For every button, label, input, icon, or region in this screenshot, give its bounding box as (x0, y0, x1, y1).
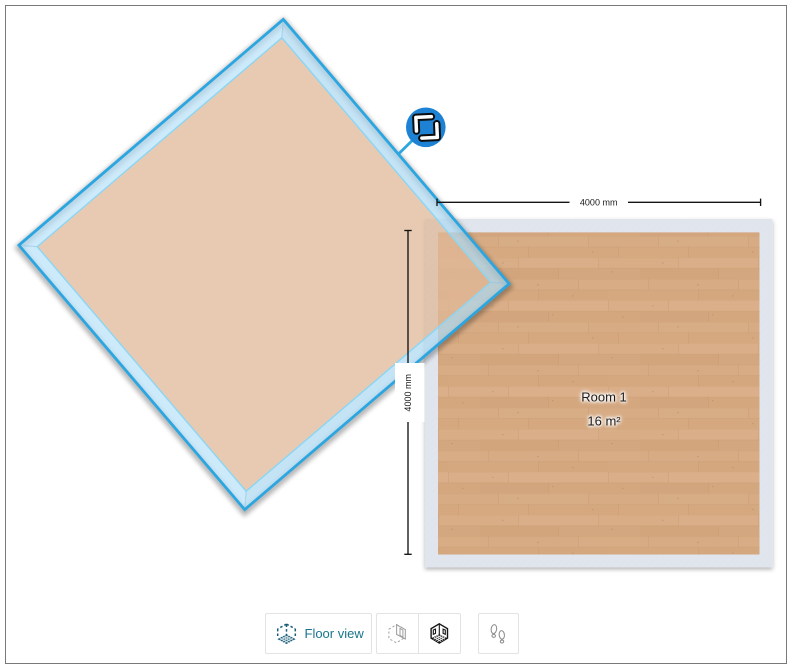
svg-text:4000 mm: 4000 mm (403, 374, 413, 412)
svg-text:Room 1: Room 1 (581, 390, 627, 405)
svg-text:16 m²: 16 m² (587, 414, 621, 429)
svg-text:4000 mm: 4000 mm (580, 197, 618, 207)
